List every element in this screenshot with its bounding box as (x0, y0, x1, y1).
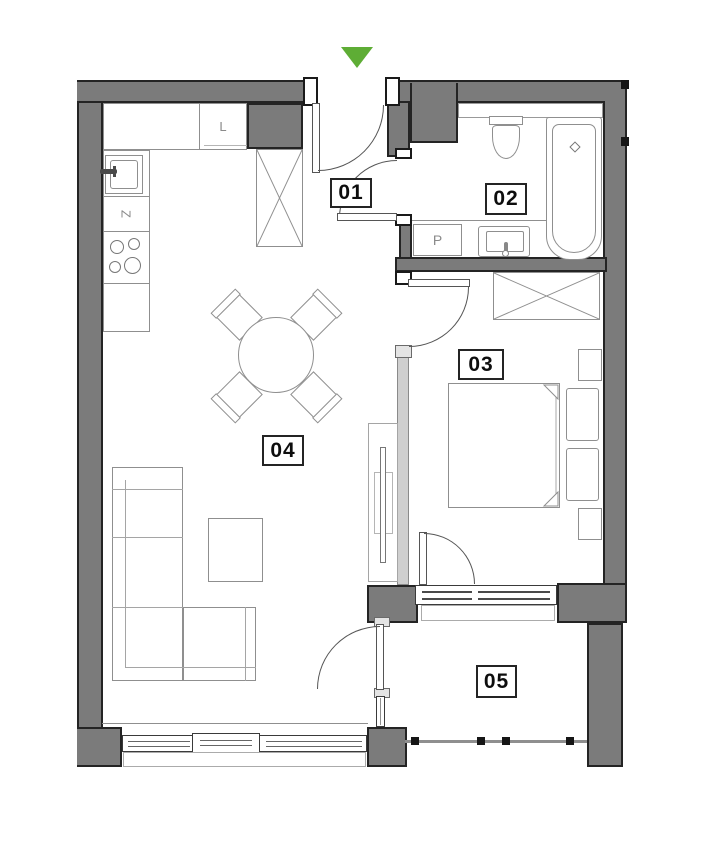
living-window-sill (123, 752, 366, 767)
room-label-05: 05 (476, 665, 517, 698)
kitchen-faucet-handle (113, 166, 116, 177)
entrance-jamb-left (303, 77, 318, 106)
entrance-arrow-icon (341, 47, 373, 68)
wall-balcony-ne (557, 583, 627, 623)
living-east-glazing-line (380, 698, 381, 725)
bath-shelf-niche (458, 103, 603, 118)
living-balcony-door-swing (317, 626, 380, 689)
entrance-jamb-right (385, 77, 400, 106)
wall-kitchen-chunk (247, 103, 303, 149)
bedroom-window-sill (421, 605, 555, 621)
pillow (566, 388, 599, 441)
railing-post (566, 737, 574, 745)
toilet (492, 125, 520, 159)
wall-hall-bath-lower (399, 221, 412, 262)
bath-door-jamb-top (395, 148, 412, 159)
balcony-railing (405, 740, 587, 743)
stove-burner (124, 257, 141, 274)
wall-right (603, 101, 627, 587)
pillow (566, 448, 599, 501)
floor-edge-line (102, 723, 368, 724)
wall-balcony-east (587, 623, 623, 767)
bedroom-window-glazing-left (422, 591, 472, 600)
living-window-glazing-right (266, 741, 362, 747)
sofa-vertical (112, 467, 183, 681)
room-label-01: 01 (330, 178, 372, 208)
dining-table (238, 317, 314, 393)
bedroom-door-swing (409, 287, 469, 347)
sofa-arm-line (245, 607, 246, 681)
wall-joint-tick (621, 137, 629, 146)
sofa-cushion-line (112, 537, 183, 538)
railing-post (411, 737, 419, 745)
nightstand (578, 349, 602, 381)
room-label-03: 03 (458, 349, 504, 380)
coffee-table (208, 518, 263, 582)
bedroom-door-leaf (408, 279, 470, 287)
nightstand (578, 508, 602, 540)
sofa-front-line (125, 667, 256, 668)
entrance-door-swing (318, 105, 384, 171)
bath-door-jamb-bottom (395, 214, 412, 226)
railing-post (477, 737, 485, 745)
living-window-sash-glazing (200, 740, 252, 746)
railing-post (502, 737, 510, 745)
cabinet-line (204, 145, 247, 146)
wall-joint-tick (621, 80, 629, 89)
bath-counter-line (412, 220, 547, 221)
sofa-armrest-line (112, 489, 183, 490)
wall-bottom-left (77, 727, 122, 767)
sofa-back-line (125, 480, 126, 668)
bath-faucet-knob (502, 250, 509, 257)
washing-machine-label: P (413, 224, 462, 256)
living-window-glazing-left (128, 741, 190, 747)
stove-burner (110, 240, 124, 254)
bedroom-window-glazing-right (478, 591, 550, 600)
bathroom-door-leaf (337, 213, 397, 221)
stove-burner (128, 238, 140, 250)
floor-plan: L Z P (0, 0, 703, 848)
tv-screen (380, 447, 386, 563)
room-label-04: 04 (262, 435, 304, 466)
bedroom-balcony-door-swing (424, 533, 475, 584)
wall-bath-corner-chunk (410, 83, 458, 143)
wall-partition-bedroom (397, 347, 409, 585)
wall-left (77, 80, 103, 767)
toilet-tank (489, 116, 523, 125)
room-label-02: 02 (485, 183, 527, 215)
stove (103, 231, 150, 284)
sofa-cushion-line (112, 607, 183, 608)
bed (448, 383, 560, 508)
fridge-label: L (199, 109, 247, 143)
wall-top-left (77, 80, 317, 103)
wall-bottom-right (367, 727, 407, 767)
wardrobe-hall (256, 149, 303, 247)
wardrobe-bedroom (493, 272, 600, 320)
stove-burner (109, 261, 121, 273)
